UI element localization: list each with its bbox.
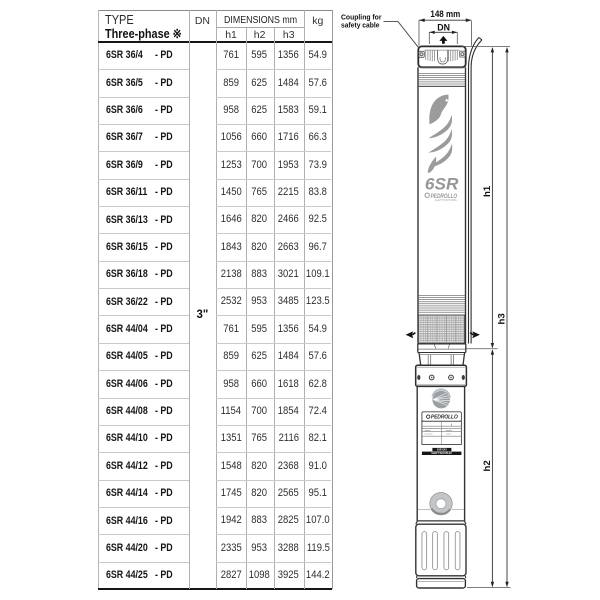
svg-text:safety cable: safety cable: [341, 20, 380, 29]
svg-text:ELETTROPOMPE: ELETTROPOMPE: [435, 200, 457, 202]
svg-text:6SR: 6SR: [425, 176, 459, 194]
svg-text:6SR XXX: 6SR XXX: [437, 449, 447, 451]
svg-text:SHAFT IN DUPLEX: SHAFT IN DUPLEX: [431, 452, 452, 455]
svg-text:h1: h1: [482, 185, 493, 197]
svg-text:h2: h2: [482, 460, 493, 471]
svg-text:PEDROLLO: PEDROLLO: [431, 415, 458, 421]
svg-text:DN: DN: [437, 23, 450, 33]
svg-text:148 mm: 148 mm: [430, 8, 460, 19]
svg-text:PEDROLLO: PEDROLLO: [431, 193, 458, 200]
svg-text:h3: h3: [496, 313, 507, 324]
